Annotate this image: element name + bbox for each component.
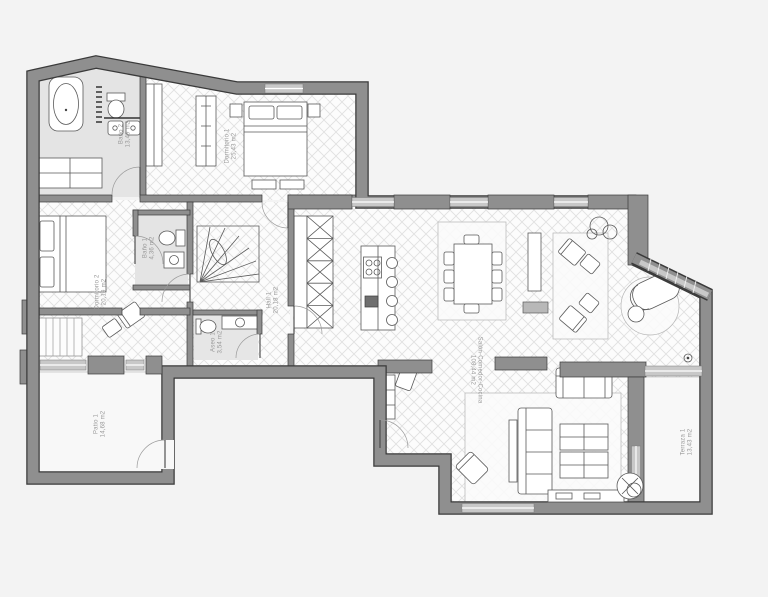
label-bano1: Baño 1 4,36 m2	[143, 236, 156, 260]
toilet-bath1	[159, 230, 185, 246]
radiator-bench	[523, 302, 548, 313]
sofa-long	[518, 408, 552, 494]
island-sink	[365, 296, 378, 307]
room-area: 13,49 m2	[126, 120, 132, 147]
room-name: Aseo 1	[211, 332, 217, 352]
dining-table	[454, 244, 492, 304]
toilet-bath2	[107, 93, 125, 118]
label-patio1: Patio 1 14,68 m2	[94, 410, 107, 437]
label-terraza: Terraza 1 13,43 m2	[681, 428, 694, 455]
sink-bath1	[164, 252, 184, 268]
room-name: Salón-Comedor-Cocina	[477, 337, 483, 404]
toilet-aseo	[196, 319, 216, 334]
room-area: 108,44 m2	[470, 355, 476, 386]
room-name: Dormitorio 1	[225, 128, 231, 164]
bath2-cabinet	[38, 158, 102, 188]
room-area: 20,19 m2	[102, 278, 108, 305]
room-name: Terraza 1	[681, 428, 687, 455]
coffee-table-2	[560, 452, 608, 478]
plant-bottom	[617, 473, 643, 499]
room-name: Hall 1	[267, 291, 273, 308]
room-area: 13,43 m2	[688, 428, 694, 455]
window-bedroom1	[265, 84, 303, 93]
sideboard	[528, 233, 541, 291]
window-main-1	[352, 198, 394, 207]
coffee-table-1	[560, 424, 608, 450]
window-main-3	[554, 198, 588, 207]
wardrobe-left	[146, 84, 162, 166]
aseo-counter-sink	[222, 316, 258, 329]
window-living-bottom	[462, 504, 534, 513]
bathtub	[49, 77, 83, 131]
floor-plan-canvas: Baño 2 13,49 m2 Dormitorio 1 25,43 m2 Do…	[0, 0, 768, 597]
room-name: Patio 1	[94, 414, 100, 435]
window-terrace-north	[645, 366, 702, 376]
room-area: 3,54 m2	[218, 330, 224, 354]
label-dormitorio2: Dormitorio 2 20,19 m2	[95, 274, 108, 310]
room-area: 14,68 m2	[101, 410, 107, 437]
room-area: 4,36 m2	[150, 236, 156, 260]
room-name: Baño 2	[119, 123, 125, 144]
room-area: 25,43 m2	[232, 132, 238, 159]
label-bano2: Baño 2 13,49 m2	[119, 120, 132, 147]
wardrobe-right	[196, 96, 216, 166]
room-area: 20,18 m2	[274, 286, 280, 313]
kitchen-tall-units	[294, 216, 333, 328]
room-name: Baño 1	[143, 237, 149, 258]
patio-door-opening	[161, 440, 174, 469]
window-main-2	[450, 198, 488, 207]
entry-stairs	[33, 318, 82, 356]
floor-plan-page: Baño 2 13,49 m2 Dormitorio 1 25,43 m2 Do…	[0, 0, 768, 597]
label-dormitorio1: Dormitorio 1 25,43 m2	[225, 128, 238, 164]
chaise-cushion	[628, 306, 644, 322]
label-aseo: Aseo 1 3,54 m2	[211, 330, 224, 354]
tv-cabinet	[548, 490, 624, 502]
room-name: Dormitorio 2	[95, 274, 101, 310]
console-table	[509, 420, 517, 482]
